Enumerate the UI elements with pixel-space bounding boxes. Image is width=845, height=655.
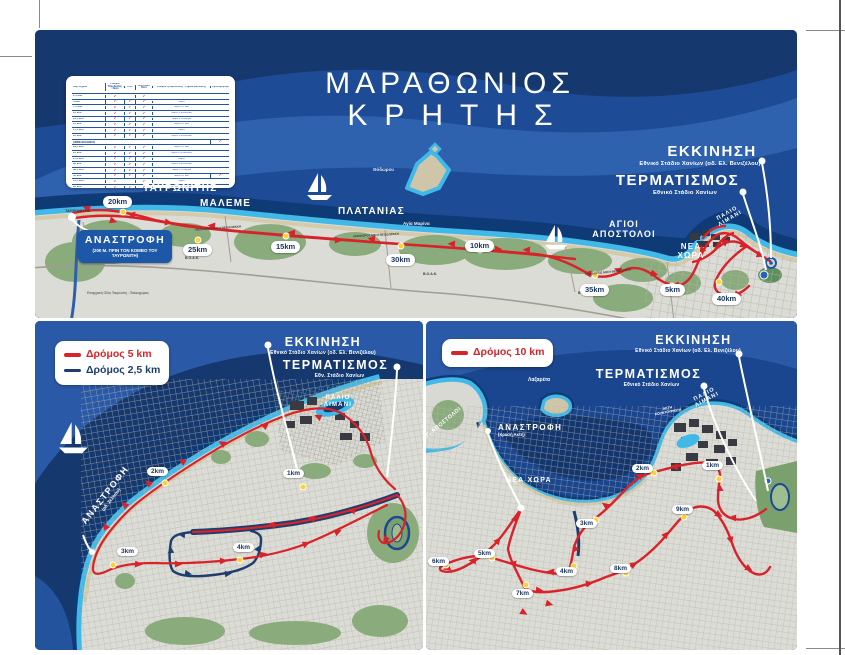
km-marker-30: 30km bbox=[386, 254, 415, 266]
km-marker-1: 1km bbox=[283, 469, 304, 478]
label-nea-chora: ΝΕΑ ΧΩΡΑ bbox=[506, 477, 552, 484]
label-agioi: ΑΓΙΟΙ bbox=[588, 219, 660, 229]
km-marker-4: 4km bbox=[556, 567, 577, 576]
start-sublabel: Εθνικό Στάδιο Χανίων (οδ. Ελ. Βενιζέλου) bbox=[263, 350, 383, 356]
finish-label: ΤΕΡΜΑΤΙΣΜΟΣ bbox=[586, 367, 711, 381]
km-marker-15: 15km bbox=[271, 241, 300, 253]
title-line1: ΜΑΡΑΘΩΝΙΟΣ bbox=[290, 68, 610, 100]
start-label: ΕΚΚΙΝΗΣΗ bbox=[647, 143, 777, 160]
km-marker-35: 35km bbox=[580, 284, 609, 296]
km-marker-2: 2km bbox=[632, 464, 653, 473]
crop-mark-right-v bbox=[839, 0, 841, 655]
legend-10k-label: Δρόμος 10 km bbox=[473, 345, 544, 361]
km-marker-8: 8km bbox=[610, 564, 631, 573]
label-boak-1: Β.Ο.Α.Κ. bbox=[185, 256, 199, 260]
label-nea-chora: ΝΕΑ ΧΩΡΑ bbox=[673, 242, 709, 260]
legend-10k: Δρόμος 10 km bbox=[442, 339, 553, 367]
km-marker-4: 4km bbox=[233, 543, 254, 552]
map-5k-panel: Δρόμος 5 km Δρόμος 2,5 km ΕΚΚΙΝΗΣΗ Εθνικ… bbox=[35, 321, 423, 650]
km-marker-9: 9km bbox=[672, 505, 693, 514]
turnaround-sublabel: (Χρυσή Ακτή) bbox=[498, 432, 568, 437]
stations-table: Χλμ. ΣημείαΣταθμοί Υδροδοσίας - ΝερόΓκελ… bbox=[66, 76, 235, 188]
finish-label: ΤΕΡΜΑΤΙΣΜΟΣ bbox=[273, 358, 398, 372]
label-tavronitis: ΤΑΥΡΩΝΙΤΗΣ bbox=[143, 183, 217, 194]
legend-item-10k: Δρόμος 10 km bbox=[451, 345, 544, 361]
label-maleme: ΜΑΛΕΜΕ bbox=[200, 198, 251, 209]
map-10k-panel: Δρόμος 10 km ΕΚΚΙΝΗΣΗ Εθνικό Στάδιο Χανί… bbox=[426, 321, 797, 650]
turnaround-label: ΑΝΑΣΤΡΟΦΗ bbox=[498, 423, 568, 432]
label-eparxiaki: Επαρχιακή Οδός Ταυρωνίτη - Παλαιοχώρας bbox=[87, 292, 149, 296]
label-tavronitis-village: ΤΑΥΡΩΝΙΤΗΣ bbox=[65, 208, 90, 213]
page: { "poster": { "title_line1": "ΜΑΡΑΘΩΝΙΟΣ… bbox=[0, 0, 845, 655]
finish-sublabel: Εθνικό Στάδιο Χανίων bbox=[609, 382, 694, 388]
turnaround-badge: ΑΝΑΣΤΡΟΦΗ (200 Μ. ΠΡΙΝ ΤΟΝ ΚΟΜΒΟ ΤΟΥ ΤΑΥ… bbox=[78, 230, 172, 263]
turnaround-sublabel: (200 Μ. ΠΡΙΝ ΤΟΝ ΚΟΜΒΟ ΤΟΥ ΤΑΥΡΩΝΙΤΗ) bbox=[83, 248, 167, 260]
legend-item-5k: Δρόμος 5 km bbox=[64, 347, 160, 363]
label-agia-marina: Αγία Μαρίνα bbox=[403, 221, 430, 226]
km-marker-5: 5km bbox=[474, 549, 495, 558]
label-platanias: ΠΛΑΤΑΝΙΑΣ bbox=[338, 206, 405, 217]
km-marker-6: 6km bbox=[428, 557, 449, 566]
start-sublabel: Εθνικό Στάδιο Χανίων (οδ. Ελ. Βενιζέλου) bbox=[635, 161, 765, 167]
label-thodorou: Θόδωρου bbox=[373, 167, 394, 172]
km-marker-2: 2km bbox=[147, 467, 168, 476]
route-2-5k-swatch bbox=[64, 369, 81, 373]
turnaround-label-group: ΑΝΑΣΤΡΟΦΗ (Χρυσή Ακτή) bbox=[498, 423, 568, 437]
km-marker-3: 3km bbox=[117, 547, 138, 556]
coastline bbox=[426, 405, 797, 650]
legend-item-2-5k: Δρόμος 2,5 km bbox=[64, 363, 160, 379]
km-marker-5: 5km bbox=[660, 284, 685, 296]
km-marker-3: 3km bbox=[576, 519, 597, 528]
crop-mark-topleft-v bbox=[39, 0, 40, 28]
main-map-panel: Χλμ. ΣημείαΣταθμοί Υδροδοσίας - ΝερόΓκελ… bbox=[35, 30, 797, 318]
label-apostoloi: ΑΠΟΣΤΟΛΟΙ bbox=[580, 229, 668, 239]
route-10k-swatch bbox=[451, 351, 468, 355]
start-label: ΕΚΚΙΝΗΣΗ bbox=[263, 335, 383, 349]
legend-2-5k-label: Δρόμος 2,5 km bbox=[86, 363, 160, 379]
table-header: Χλμ. ΣημείαΣταθμοί Υδροδοσίας - ΝερόΓκελ… bbox=[72, 81, 229, 94]
page-title: ΜΑΡΑΘΩΝΙΟΣ ΚΡΗΤΗΣ bbox=[290, 68, 610, 131]
label-boak-2: Β.Ο.Α.Κ. bbox=[423, 272, 437, 276]
crop-mark-topleft-h bbox=[0, 56, 32, 57]
label-palio-limani: ΠΑΛΙΟ ΛΙΜΑΝΙ bbox=[319, 395, 357, 409]
legend-5k: Δρόμος 5 km Δρόμος 2,5 km bbox=[55, 341, 169, 385]
finish-sublabel: Εθν. Στάδιο Χανίων bbox=[297, 373, 382, 379]
turnaround-label: ΑΝΑΣΤΡΟΦΗ bbox=[83, 234, 167, 246]
km-marker-20: 20km bbox=[103, 196, 132, 208]
finish-sublabel: Εθνικό Στάδιο Χανίων bbox=[630, 190, 740, 196]
km-marker-10: 10km bbox=[465, 240, 494, 252]
label-lazareta: Λαζαρέτα bbox=[528, 377, 550, 383]
km-marker-25: 25km bbox=[183, 244, 212, 256]
marathon-poster: Χλμ. ΣημείαΣταθμοί Υδροδοσίας - ΝερόΓκελ… bbox=[35, 30, 797, 650]
km-marker-7: 7km bbox=[512, 589, 533, 598]
route-5k-swatch bbox=[64, 353, 81, 357]
title-line2: ΚΡΗΤΗΣ bbox=[290, 100, 610, 132]
legend-5k-label: Δρόμος 5 km bbox=[86, 347, 152, 363]
km-marker-1: 1km bbox=[702, 461, 723, 470]
finish-label: ΤΕΡΜΑΤΙΣΜΟΣ bbox=[610, 172, 745, 189]
start-label: ΕΚΚΙΝΗΣΗ bbox=[631, 333, 756, 347]
start-sublabel: Εθνικό Στάδιο Χανίων (οδ. Ελ. Βενιζέλου) bbox=[618, 348, 758, 354]
km-marker-40: 40km bbox=[712, 293, 741, 305]
